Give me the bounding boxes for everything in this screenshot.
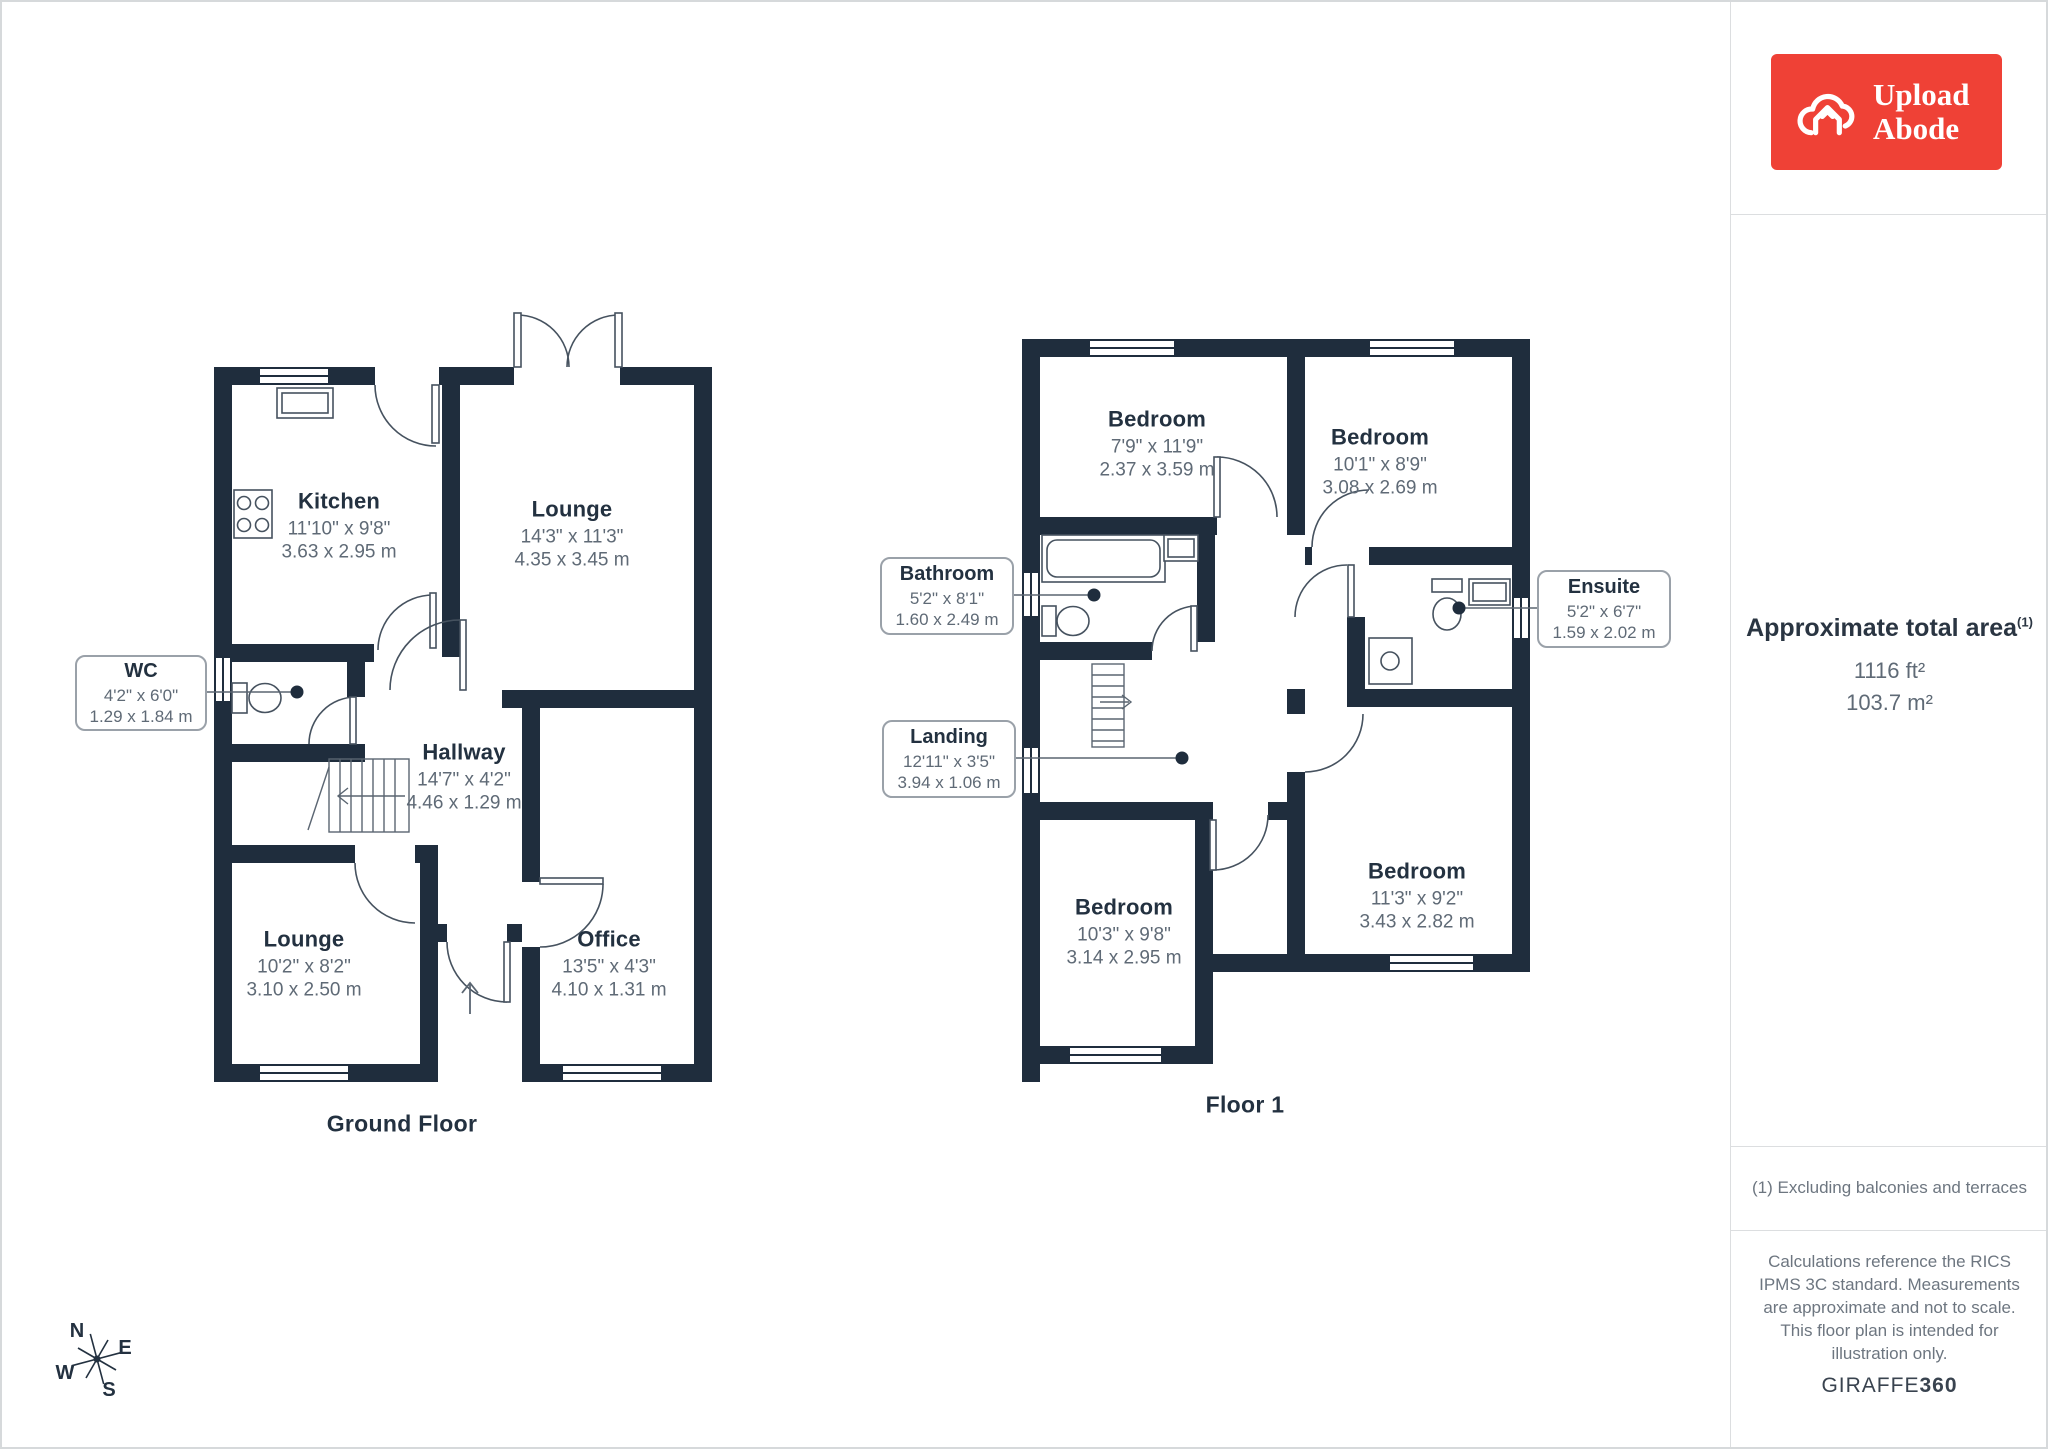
floor1-stairs (1092, 664, 1131, 747)
logo-text: Upload Abode (1873, 78, 1969, 146)
area-imperial: 1116 ft² (1731, 655, 2048, 687)
compass-n: N (70, 1320, 84, 1342)
ensuite-sink-icon (1469, 579, 1510, 605)
total-area-title: Approximate total area(1) (1731, 614, 2048, 643)
area-footnote: (1) Excluding balconies and terraces (1731, 1178, 2048, 1198)
bathroom-toilet-icon (1042, 606, 1089, 636)
entrance-arrow-icon (462, 983, 478, 1014)
total-area-values: 1116 ft² 103.7 m² (1731, 655, 2048, 719)
upload-abode-logo: Upload Abode (1771, 54, 2002, 170)
room-label-lounge-bottom: Lounge 10'2" x 8'2" 3.10 x 2.50 m (246, 927, 361, 1002)
ground-floor-stairs (308, 759, 409, 832)
callout-bathroom: Bathroom 5'2" x 8'1" 1.60 x 2.49 m (880, 557, 1014, 635)
footnote-marker: (1) (2017, 615, 2033, 630)
room-label-hallway: Hallway 14'7" x 4'2" 4.46 x 1.29 m (406, 740, 521, 815)
callout-ensuite: Ensuite 5'2" x 6'7" 1.59 x 2.02 m (1537, 570, 1671, 648)
sidebar-divider (1731, 1146, 2048, 1147)
shower-icon (1369, 638, 1412, 684)
info-sidebar: Upload Abode Approximate total area(1) 1… (1730, 2, 2048, 1449)
room-label-bedroom-bl: Bedroom 10'3" x 9'8" 3.14 x 2.95 m (1066, 895, 1181, 970)
room-label-kitchen: Kitchen 11'10" x 9'8" 3.63 x 2.95 m (281, 489, 396, 564)
cloud-house-icon (1789, 75, 1863, 149)
compass-e: E (118, 1337, 131, 1359)
room-label-office: Office 13'5" x 4'3" 4.10 x 1.31 m (551, 927, 666, 1002)
floor1-title: Floor 1 (1206, 1092, 1285, 1119)
ground-floor-title: Ground Floor (327, 1111, 478, 1138)
giraffe360-brand: GIRAFFE360 (1731, 1374, 2048, 1398)
hob-icon (234, 490, 272, 538)
kitchen-sink-icon (277, 388, 333, 418)
room-label-bedroom-tl: Bedroom 7'9" x 11'9" 2.37 x 3.59 m (1099, 407, 1214, 482)
bathroom-sink-icon (1164, 535, 1198, 561)
callout-wc: WC 4'2" x 6'0" 1.29 x 1.84 m (75, 655, 207, 731)
sidebar-divider (1731, 214, 2048, 215)
room-label-bedroom-br: Bedroom 11'3" x 9'2" 3.43 x 2.82 m (1359, 859, 1474, 934)
room-label-bedroom-tr: Bedroom 10'1" x 8'9" 3.08 x 2.69 m (1322, 425, 1437, 500)
disclaimer-text: Calculations reference the RICS IPMS 3C … (1755, 1250, 2024, 1365)
bathtub-icon (1042, 535, 1165, 582)
sidebar-divider (1731, 1230, 2048, 1231)
room-label-lounge-top: Lounge 14'3" x 11'3" 4.35 x 3.45 m (514, 497, 629, 572)
compass-rose: N E S W (56, 1320, 132, 1401)
compass-w: W (56, 1362, 75, 1384)
wc-toilet-icon (232, 683, 281, 713)
total-area-block: Approximate total area(1) 1116 ft² 103.7… (1731, 614, 2048, 719)
callout-landing: Landing 12'11" x 3'5" 3.94 x 1.06 m (882, 720, 1016, 798)
compass-s: S (102, 1379, 115, 1401)
area-metric: 103.7 m² (1731, 687, 2048, 719)
floorplan-page: N E S W Kitchen 11'10" x 9'8" 3.63 x 2.9… (0, 0, 2048, 1449)
